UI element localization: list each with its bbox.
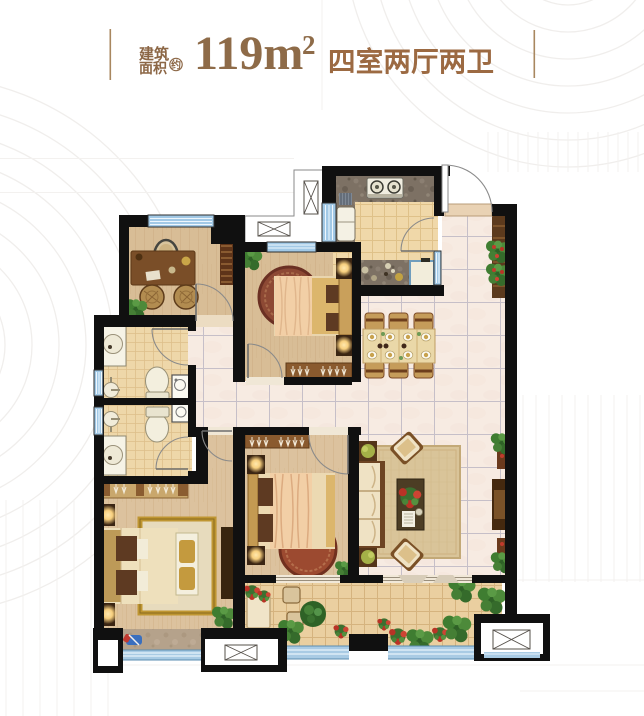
svg-text:约: 约 <box>171 59 181 72</box>
svg-text:四室两厅两卫: 四室两厅两卫 <box>328 46 494 77</box>
svg-text:面积: 面积 <box>139 60 167 76</box>
svg-text:2: 2 <box>302 30 316 60</box>
svg-text:119m: 119m <box>194 27 303 80</box>
